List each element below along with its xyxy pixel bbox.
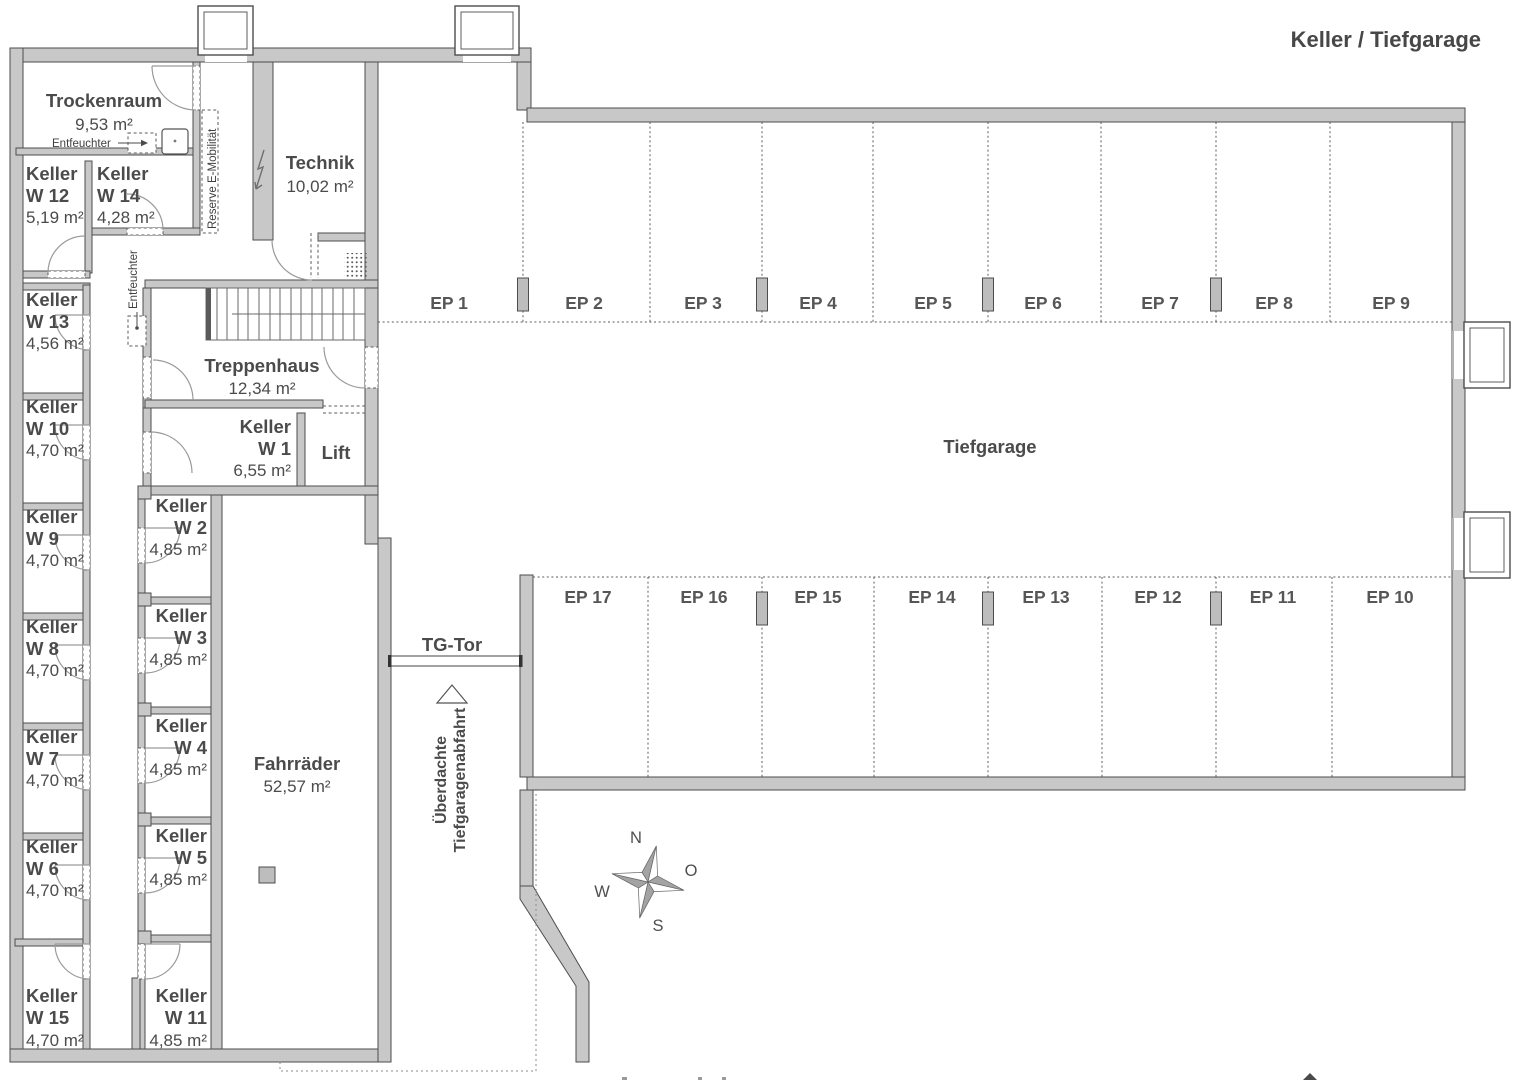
label-entfeuchter: Entfeuchter (52, 138, 111, 150)
parking-spot-label: EP 9 (1372, 293, 1410, 313)
parking-markings (378, 122, 1452, 777)
cellar-num: W 12 (26, 185, 69, 206)
cellar-area: 6,55 m² (233, 461, 291, 480)
room-label-trockenraum: Trockenraum (46, 90, 162, 111)
cellar-area: 4,85 m² (149, 1031, 207, 1050)
staircase (206, 288, 365, 340)
cellar-area: 4,85 m² (149, 540, 207, 559)
compass-north-label: N (630, 829, 642, 847)
cellar-num: W 1 (258, 438, 291, 459)
cellar-area: 4,70 m² (26, 771, 84, 790)
pillars (259, 278, 1222, 883)
cellar-num: W 3 (174, 627, 207, 648)
room-label-fahrraeder: Fahrräder (254, 753, 340, 774)
cellar-area: 4,56 m² (26, 334, 84, 353)
cellar-num: W 11 (165, 1007, 207, 1028)
cellar-num: W 13 (26, 311, 69, 332)
label-ramp-line1: Überdachte (431, 736, 450, 824)
cellar-label: Keller (156, 495, 207, 516)
cellar-num: W 9 (26, 528, 59, 549)
label-ramp: Überdachte Tiefgaragenabfahrt (431, 707, 469, 852)
room-area-treppenhaus: 12,34 m² (228, 379, 295, 398)
parking-spot-label: EP 16 (680, 587, 728, 607)
cellar-num: W 6 (26, 858, 59, 879)
parking-spot-label: EP 4 (799, 293, 837, 313)
cellar-area: 4,85 m² (149, 760, 207, 779)
ramp-direction-icon (437, 685, 467, 703)
cellar-area: 4,85 m² (149, 870, 207, 889)
parking-spot-label: EP 14 (908, 587, 956, 607)
parking-spot-label: EP 17 (564, 587, 611, 607)
room-area-fahrraeder: 52,57 m² (263, 777, 330, 796)
cellar-label: Keller (97, 163, 148, 184)
labels-layer: Keller / Tiefgarage Trockenraum 9,53 m² … (26, 27, 1481, 1050)
cellar-label: Keller (240, 416, 291, 437)
cellar-num: W 14 (97, 185, 141, 206)
cellar-label: Keller (26, 289, 77, 310)
cellar-area: 4,70 m² (26, 551, 84, 570)
light-wells (198, 6, 1510, 578)
parking-spot-label: EP 6 (1024, 293, 1062, 313)
compass-south-label: S (652, 917, 663, 935)
cellar-label: Keller (26, 616, 77, 637)
parking-spot-label: EP 5 (914, 293, 952, 313)
room-area-technik: 10,02 m² (286, 177, 353, 196)
room-label-lift: Lift (322, 442, 351, 463)
parking-spot-label: EP 7 (1141, 293, 1179, 313)
cellar-num: W 7 (26, 748, 59, 769)
room-label-tiefgarage: Tiefgarage (943, 436, 1036, 457)
vent-grid-icon (344, 253, 368, 278)
room-label-technik: Technik (286, 152, 355, 173)
cellar-area: 4,70 m² (26, 1031, 84, 1050)
cellar-area: 4,28 m² (97, 208, 155, 227)
parking-spot-label: EP 15 (794, 587, 842, 607)
parking-spot-label: EP 2 (565, 293, 603, 313)
dehumidifier-device-icon (162, 129, 188, 154)
cellar-label: Keller (26, 985, 77, 1006)
cellar-label: Keller (26, 163, 77, 184)
boundary-dotted-line (280, 790, 536, 1071)
cellar-label: Keller (156, 985, 207, 1006)
room-area-trockenraum: 9,53 m² (75, 115, 133, 134)
cellar-area: 5,19 m² (26, 208, 84, 227)
cellar-label: Keller (156, 825, 207, 846)
cellar-label: Keller (26, 506, 77, 527)
garage-gate (388, 655, 523, 667)
cellar-area: 4,70 m² (26, 661, 84, 680)
cutoff-logo-fragment (1303, 1073, 1317, 1080)
cellar-num: W 10 (26, 418, 69, 439)
cellar-label: Keller (26, 836, 77, 857)
cellar-num: W 15 (26, 1007, 69, 1028)
column-fahrraeder (259, 867, 275, 883)
cellar-num: W 5 (174, 847, 207, 868)
parking-spot-label: EP 10 (1366, 587, 1414, 607)
label-entfeuchter-corridor: Entfeuchter (128, 250, 140, 309)
cellar-num: W 8 (26, 638, 59, 659)
compass-west-label: W (594, 883, 610, 901)
cellar-label: Keller (26, 396, 77, 417)
room-label-treppenhaus: Treppenhaus (204, 355, 319, 376)
parking-spot-label: EP 3 (684, 293, 722, 313)
cellar-label: Keller (26, 726, 77, 747)
parking-spot-label: EP 8 (1255, 293, 1293, 313)
cellar-label: Keller (156, 715, 207, 736)
cellar-area: 4,70 m² (26, 441, 84, 460)
cellar-area: 4,70 m² (26, 881, 84, 900)
cellar-num: W 4 (174, 737, 208, 758)
parking-spot-label: EP 12 (1134, 587, 1182, 607)
cellar-num: W 2 (174, 517, 207, 538)
cellar-label: Keller (156, 605, 207, 626)
parking-spot-label: EP 13 (1022, 587, 1070, 607)
label-ramp-line2: Tiefgaragenabfahrt (452, 707, 469, 852)
parking-spot-label: EP 11 (1250, 587, 1297, 607)
label-tg-tor: TG-Tor (422, 634, 482, 655)
compass-icon: N O S W (594, 829, 697, 935)
compass-east-label: O (685, 862, 698, 880)
floor-plan-keller-tiefgarage: N O S W Keller / Tiefgarage Trockenraum … (0, 0, 1518, 1080)
walls-layer (10, 48, 1465, 1062)
parking-spot-label: EP 1 (430, 293, 468, 313)
cellar-area: 4,85 m² (149, 650, 207, 669)
page-title: Keller / Tiefgarage (1291, 27, 1481, 52)
label-reserve-e-mobilitaet: Reserve E-Mobilität (207, 128, 219, 229)
